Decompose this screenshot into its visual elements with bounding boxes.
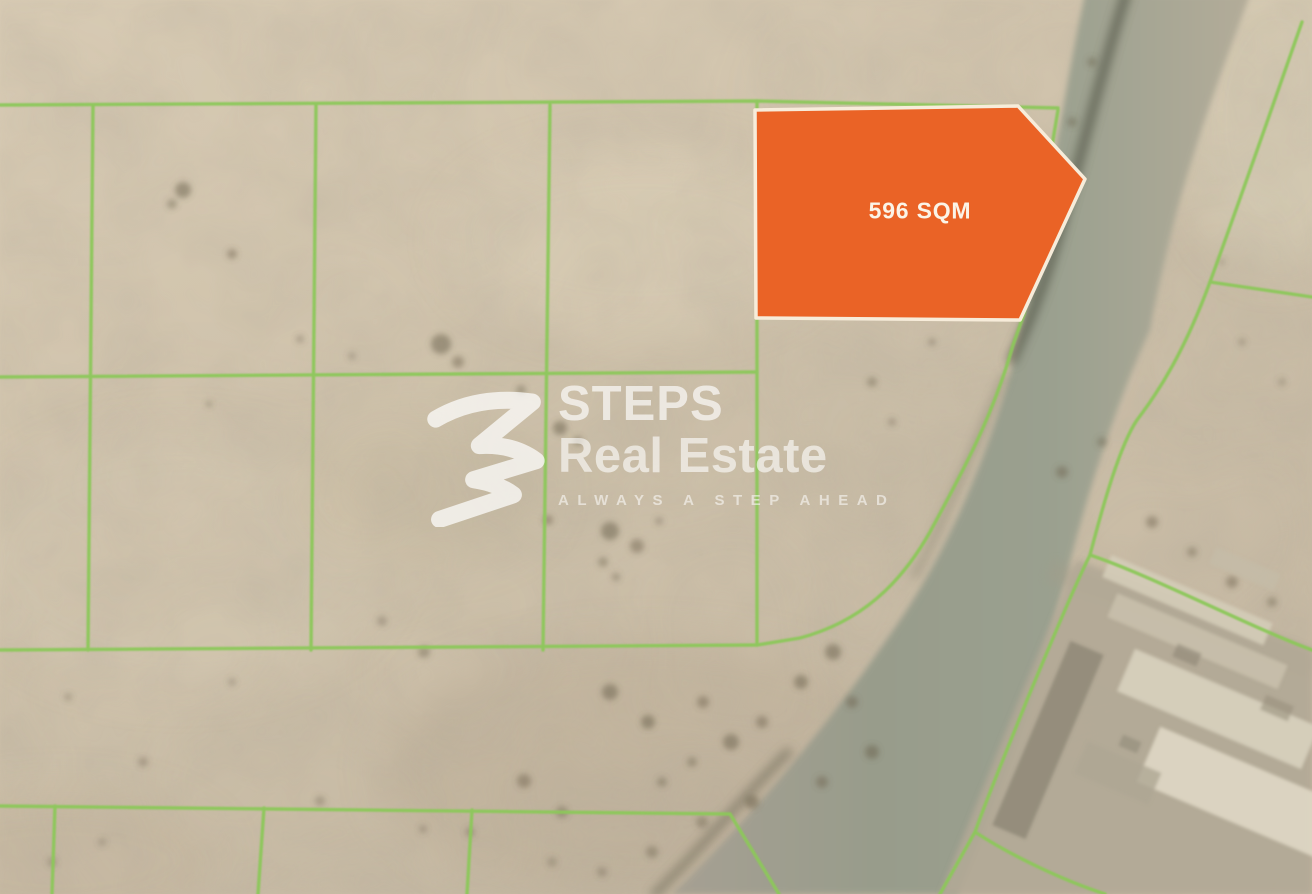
watermark-brand-bottom: Real Estate (558, 432, 895, 481)
steps-logo-icon (416, 385, 554, 527)
map-canvas: 596 SQM STEPS Real Estate ALWAYS A STEP … (0, 0, 1312, 894)
watermark-brand-top: STEPS (558, 380, 895, 429)
watermark: STEPS Real Estate ALWAYS A STEP AHEAD (416, 380, 895, 527)
watermark-tagline: ALWAYS A STEP AHEAD (558, 492, 895, 509)
watermark-text: STEPS Real Estate ALWAYS A STEP AHEAD (558, 380, 895, 509)
plot-area-label: 596 SQM (869, 198, 972, 225)
